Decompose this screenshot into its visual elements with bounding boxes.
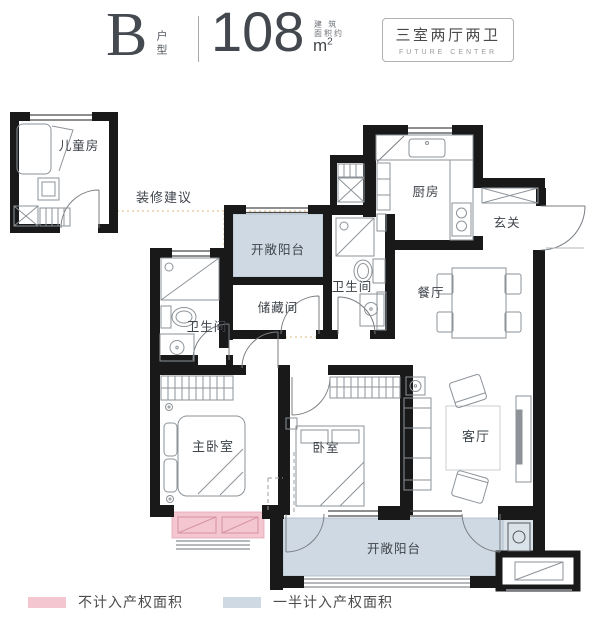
equipment-platform	[499, 554, 577, 590]
room-label-children-room: 儿童房	[59, 138, 100, 153]
room-label-bathroom-right: 卫生间	[332, 280, 373, 294]
room-label-master-bedroom: 主卧室	[192, 439, 234, 454]
header: B 户型 108 建 筑面积约 m2 三室两厅两卫 FUTURE CENTER	[0, 0, 600, 90]
excluded-area-shading	[172, 512, 264, 538]
layout-badge-title: 三室两厅两卫	[395, 24, 500, 45]
room-label-storage: 储藏间	[258, 300, 299, 315]
room-label-bathroom-left: 卫生间	[187, 320, 228, 334]
legend-item-excluded: 不计入产权面积	[28, 592, 183, 612]
legend: 不计入产权面积 一半计入产权面积	[28, 592, 393, 612]
legend-label-excluded: 不计入产权面积	[78, 592, 183, 612]
area-unit: m2	[313, 36, 333, 56]
room-label-foyer: 玄关	[493, 215, 520, 230]
area-unit-base: m	[313, 36, 327, 55]
legend-item-half-counted: 一半计入产权面积	[223, 592, 393, 612]
area-note-line1: 建 筑	[314, 20, 338, 29]
legend-label-half-counted: 一半计入产权面积	[273, 592, 393, 612]
layout-badge-subtitle: FUTURE CENTER	[399, 49, 497, 56]
legend-swatch-half-counted	[223, 597, 261, 608]
floor-plan: 儿童房 装修建议 厨房 玄关 开敞阳台 卫生间 储藏间 餐厅 卫生间 主卧室 卧…	[0, 0, 600, 620]
area-value: 108	[211, 0, 304, 64]
renovation-suggestion-label: 装修建议	[136, 190, 192, 205]
area-unit-sup: 2	[327, 36, 333, 47]
room-label-living-room: 客厅	[462, 429, 490, 444]
layout-badge: 三室两厅两卫 FUTURE CENTER	[382, 18, 514, 62]
room-label-balcony-bottom: 开敞阳台	[367, 541, 421, 556]
unit-type-label: 户型	[153, 30, 169, 58]
bay-window-area	[172, 512, 264, 538]
room-label-dining: 餐厅	[417, 285, 444, 300]
room-label-bedroom: 卧室	[312, 440, 339, 455]
room-label-kitchen: 厨房	[412, 184, 439, 199]
header-divider	[198, 16, 199, 62]
room-label-balcony-top: 开敞阳台	[251, 242, 305, 257]
unit-type-letter: B	[106, 2, 147, 68]
legend-swatch-excluded	[28, 597, 66, 608]
